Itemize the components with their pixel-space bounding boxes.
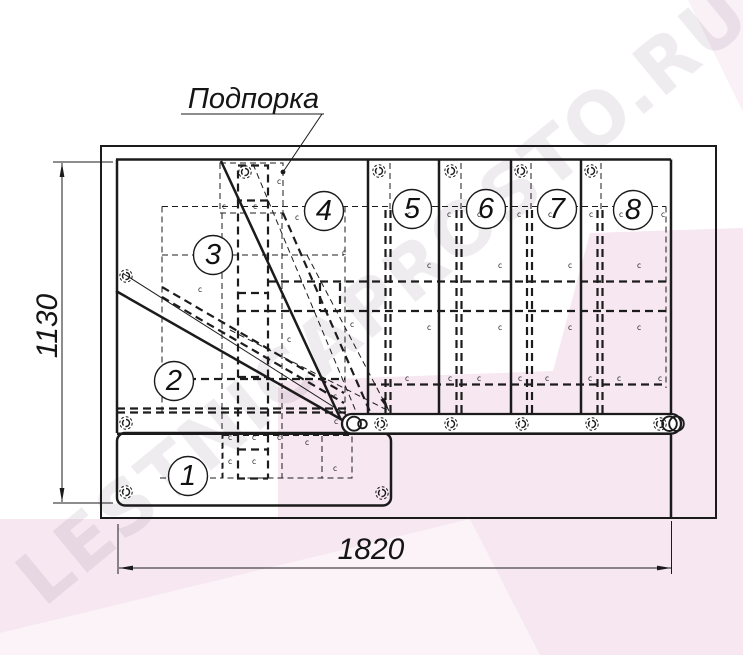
rivet-mark: c xyxy=(228,457,232,466)
leader-line xyxy=(283,114,322,172)
rivet-mark: c xyxy=(334,417,338,426)
rivet-mark: c xyxy=(295,213,299,222)
rivet-mark: c xyxy=(333,392,337,401)
dimension-arrow xyxy=(119,566,133,571)
step-number-1: 1 xyxy=(168,456,208,496)
rivet-mark: c xyxy=(350,320,354,329)
bolt-icon xyxy=(445,165,457,177)
side-rail-beam xyxy=(342,414,681,434)
rivet-mark: c xyxy=(568,323,572,332)
bolt-icon xyxy=(585,165,597,177)
step-number-7: 7 xyxy=(537,189,577,229)
stair-drawing-page: LESTNICAPROSTO.RU xyxy=(0,0,743,655)
support-label: Подпорка xyxy=(181,83,326,116)
rivet-mark: c xyxy=(448,374,452,383)
rivet-mark: c xyxy=(277,433,281,442)
rivet-mark: c xyxy=(447,210,451,219)
rivet-mark: c xyxy=(617,374,621,383)
rivet-mark: c xyxy=(252,433,256,442)
rivet-mark: c xyxy=(637,323,641,332)
width-dimension-value: 1820 xyxy=(311,533,431,567)
step-number-2: 2 xyxy=(154,361,194,401)
bolt-icon xyxy=(120,270,132,282)
rivet-mark: c xyxy=(658,374,662,383)
bolt-icon xyxy=(239,166,251,178)
rivet-mark: c xyxy=(252,457,256,466)
rivet-mark: c xyxy=(228,433,232,442)
rivet-mark: c xyxy=(277,177,281,186)
bottom-step-panel xyxy=(117,433,391,506)
rivet-mark: c xyxy=(333,464,337,473)
step-number-6: 6 xyxy=(466,189,506,229)
step-number-3: 3 xyxy=(193,235,233,275)
rivet-mark: c xyxy=(222,202,226,211)
rivet-mark: c xyxy=(588,374,592,383)
rivet-mark: c xyxy=(253,202,257,211)
step-number-8: 8 xyxy=(613,190,653,230)
rivet-mark: c xyxy=(405,374,409,383)
rivet-mark: c xyxy=(427,323,431,332)
rivet-mark: c xyxy=(305,438,309,447)
leader-dot xyxy=(281,170,286,175)
rivet-mark: c xyxy=(342,248,346,257)
bolt-icon xyxy=(120,417,132,429)
bolt-icon xyxy=(515,165,527,177)
rivet-mark: c xyxy=(477,374,481,383)
rivet-mark: c xyxy=(517,210,521,219)
rivet-mark: c xyxy=(427,261,431,270)
rivet-mark: c xyxy=(498,323,502,332)
rivet-mark: c xyxy=(637,261,641,270)
rivet-mark: c xyxy=(498,261,502,270)
dimension-arrow xyxy=(60,163,65,177)
rivet-mark: c xyxy=(287,335,291,344)
rivet-mark: c xyxy=(661,210,665,219)
rivet-mark: c xyxy=(518,374,522,383)
rivet-mark: c xyxy=(198,285,202,294)
rivet-mark: c xyxy=(545,374,549,383)
bolt-icon xyxy=(373,165,385,177)
step-number-4: 4 xyxy=(304,191,344,231)
height-dimension-value: 1130 xyxy=(31,280,65,372)
rivet-mark: c xyxy=(568,261,572,270)
bolt-icon xyxy=(120,486,132,498)
step-number-5: 5 xyxy=(392,189,432,229)
bolt-icon xyxy=(376,487,388,499)
dimension-arrow xyxy=(657,566,671,571)
rivet-mark: c xyxy=(589,210,593,219)
dimension-arrow xyxy=(60,488,65,502)
